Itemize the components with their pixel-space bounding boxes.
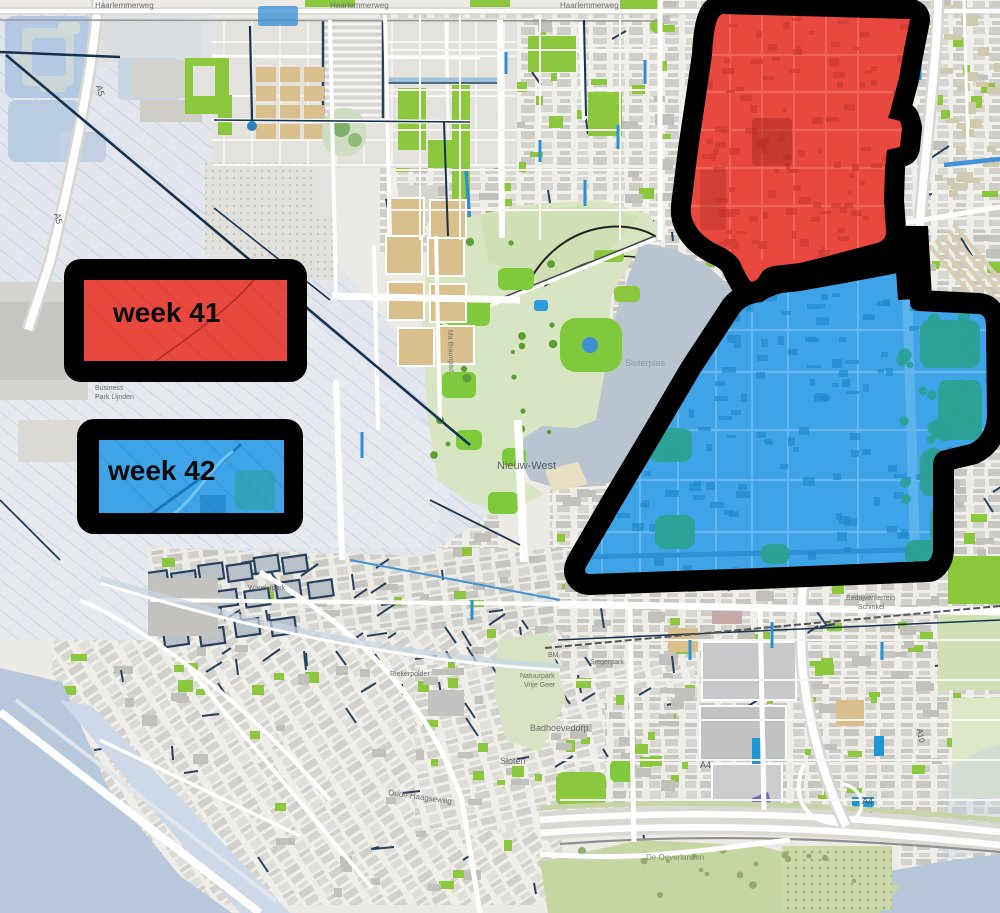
- svg-text:Ma Braunpad: Ma Braunpad: [446, 330, 454, 372]
- svg-text:Schinkel: Schinkel: [858, 604, 885, 611]
- svg-text:A4: A4: [700, 760, 711, 770]
- svg-text:Sloten: Sloten: [500, 756, 526, 766]
- svg-text:Wandelpark: Wandelpark: [248, 585, 286, 592]
- svg-text:Badhoevedorp: Badhoevedorp: [530, 723, 589, 733]
- svg-text:Siegerpark: Siegerpark: [590, 659, 624, 666]
- svg-text:Park Lijnden: Park Lijnden: [95, 394, 134, 401]
- svg-text:Haarlemmerweg: Haarlemmerweg: [330, 1, 389, 10]
- svg-text:week 41: week 41: [112, 297, 220, 328]
- svg-text:Haarlemmerweg: Haarlemmerweg: [95, 1, 154, 10]
- svg-text:De Oeverlanden: De Oeverlanden: [646, 853, 704, 862]
- svg-text:Riekerpolder: Riekerpolder: [390, 671, 430, 678]
- svg-text:A4: A4: [862, 796, 873, 806]
- svg-text:Vrije Geer: Vrije Geer: [524, 682, 556, 689]
- svg-text:Haarlemmerweg: Haarlemmerweg: [560, 1, 619, 10]
- svg-text:Sloterplas: Sloterplas: [625, 358, 666, 368]
- svg-text:Nieuw-West: Nieuw-West: [497, 460, 556, 472]
- svg-text:Business: Business: [95, 385, 124, 392]
- svg-text:BM: BM: [548, 652, 559, 659]
- svg-text:Natuurpark: Natuurpark: [520, 673, 555, 680]
- svg-text:week 42: week 42: [107, 455, 215, 486]
- svg-text:Bedrijventerrein: Bedrijventerrein: [846, 595, 895, 602]
